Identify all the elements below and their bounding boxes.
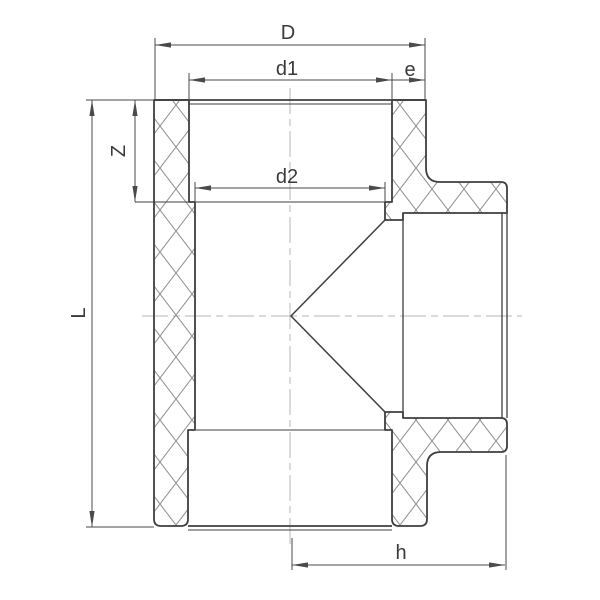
dimension-D-label: D xyxy=(281,22,295,44)
right-wall-branch-top-section xyxy=(385,100,507,220)
dimension-Z-label: Z xyxy=(108,145,130,157)
right-wall-branch-bottom-section xyxy=(385,412,507,526)
dimension-e-label: e xyxy=(404,59,415,81)
centerlines xyxy=(142,88,522,545)
left-wall-section xyxy=(154,100,195,526)
dimensions xyxy=(86,38,506,570)
dimension-h-label: h xyxy=(395,542,406,564)
body-sections xyxy=(154,100,507,526)
dimension-labels: D d1 e Z d2 L h xyxy=(68,22,416,564)
dimension-d1-label: d1 xyxy=(276,58,298,80)
technical-drawing-page: D d1 e Z d2 L h xyxy=(0,0,600,600)
dimension-L-label: L xyxy=(68,307,90,318)
dimension-L xyxy=(86,100,154,527)
dimension-d2-label: d2 xyxy=(276,166,298,188)
tee-fitting-section-drawing: D d1 e Z d2 L h xyxy=(0,0,600,600)
